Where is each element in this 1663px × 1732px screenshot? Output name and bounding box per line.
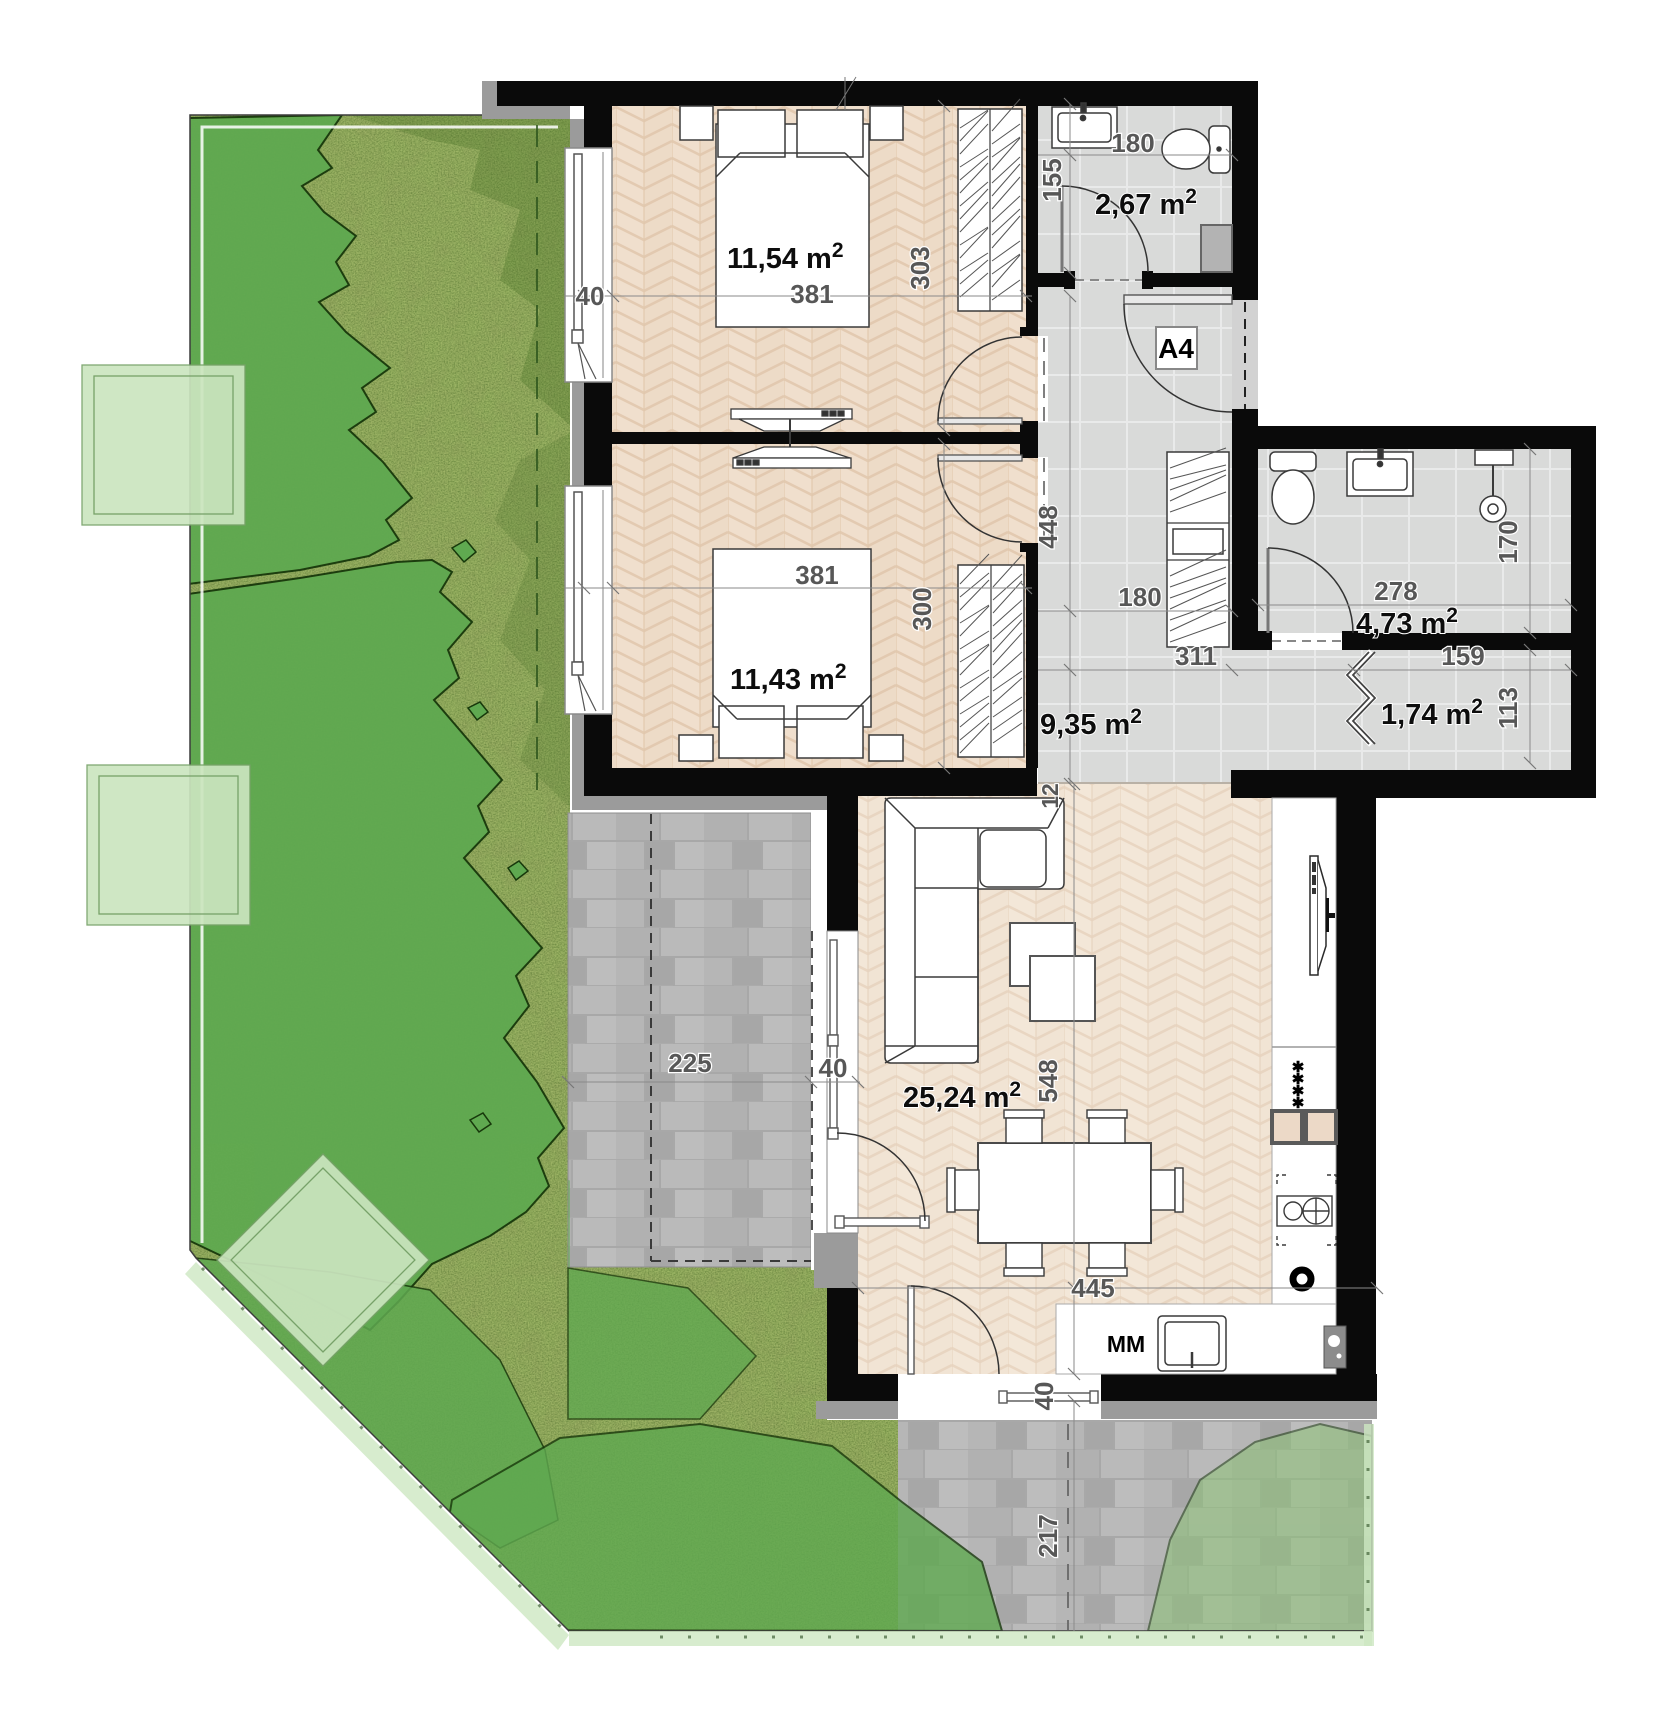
svg-text:303: 303 xyxy=(905,246,935,289)
svg-text:180: 180 xyxy=(1111,128,1154,158)
svg-text:155: 155 xyxy=(1037,158,1067,201)
svg-text:381: 381 xyxy=(795,560,838,590)
svg-text:448: 448 xyxy=(1033,505,1063,548)
svg-text:40: 40 xyxy=(819,1053,848,1083)
svg-text:40: 40 xyxy=(1029,1382,1059,1411)
svg-text:311: 311 xyxy=(1175,641,1217,671)
svg-text:40: 40 xyxy=(576,281,605,311)
svg-text:159: 159 xyxy=(1441,641,1484,671)
svg-text:113: 113 xyxy=(1493,687,1523,729)
svg-text:180: 180 xyxy=(1118,582,1161,612)
svg-text:278: 278 xyxy=(1374,576,1417,606)
svg-text:25,24 m2: 25,24 m2 xyxy=(903,1078,1021,1114)
svg-text:4,73 m2: 4,73 m2 xyxy=(1356,604,1458,640)
svg-text:2,67 m2: 2,67 m2 xyxy=(1095,185,1197,221)
svg-text:300: 300 xyxy=(907,587,937,630)
svg-text:170: 170 xyxy=(1493,520,1523,563)
svg-text:225: 225 xyxy=(668,1048,711,1078)
svg-text:11,43 m2: 11,43 m2 xyxy=(730,660,847,696)
svg-text:9,35 m2: 9,35 m2 xyxy=(1040,705,1142,741)
svg-text:445: 445 xyxy=(1071,1273,1114,1303)
svg-text:12: 12 xyxy=(1037,783,1063,809)
svg-text:381: 381 xyxy=(790,279,833,309)
svg-text:217: 217 xyxy=(1033,1514,1063,1557)
svg-text:548: 548 xyxy=(1033,1059,1063,1102)
svg-text:1,74 m2: 1,74 m2 xyxy=(1381,695,1483,731)
svg-text:A4: A4 xyxy=(1158,333,1194,364)
svg-text:11,54 m2: 11,54 m2 xyxy=(727,239,844,275)
svg-text:MM: MM xyxy=(1107,1331,1145,1357)
